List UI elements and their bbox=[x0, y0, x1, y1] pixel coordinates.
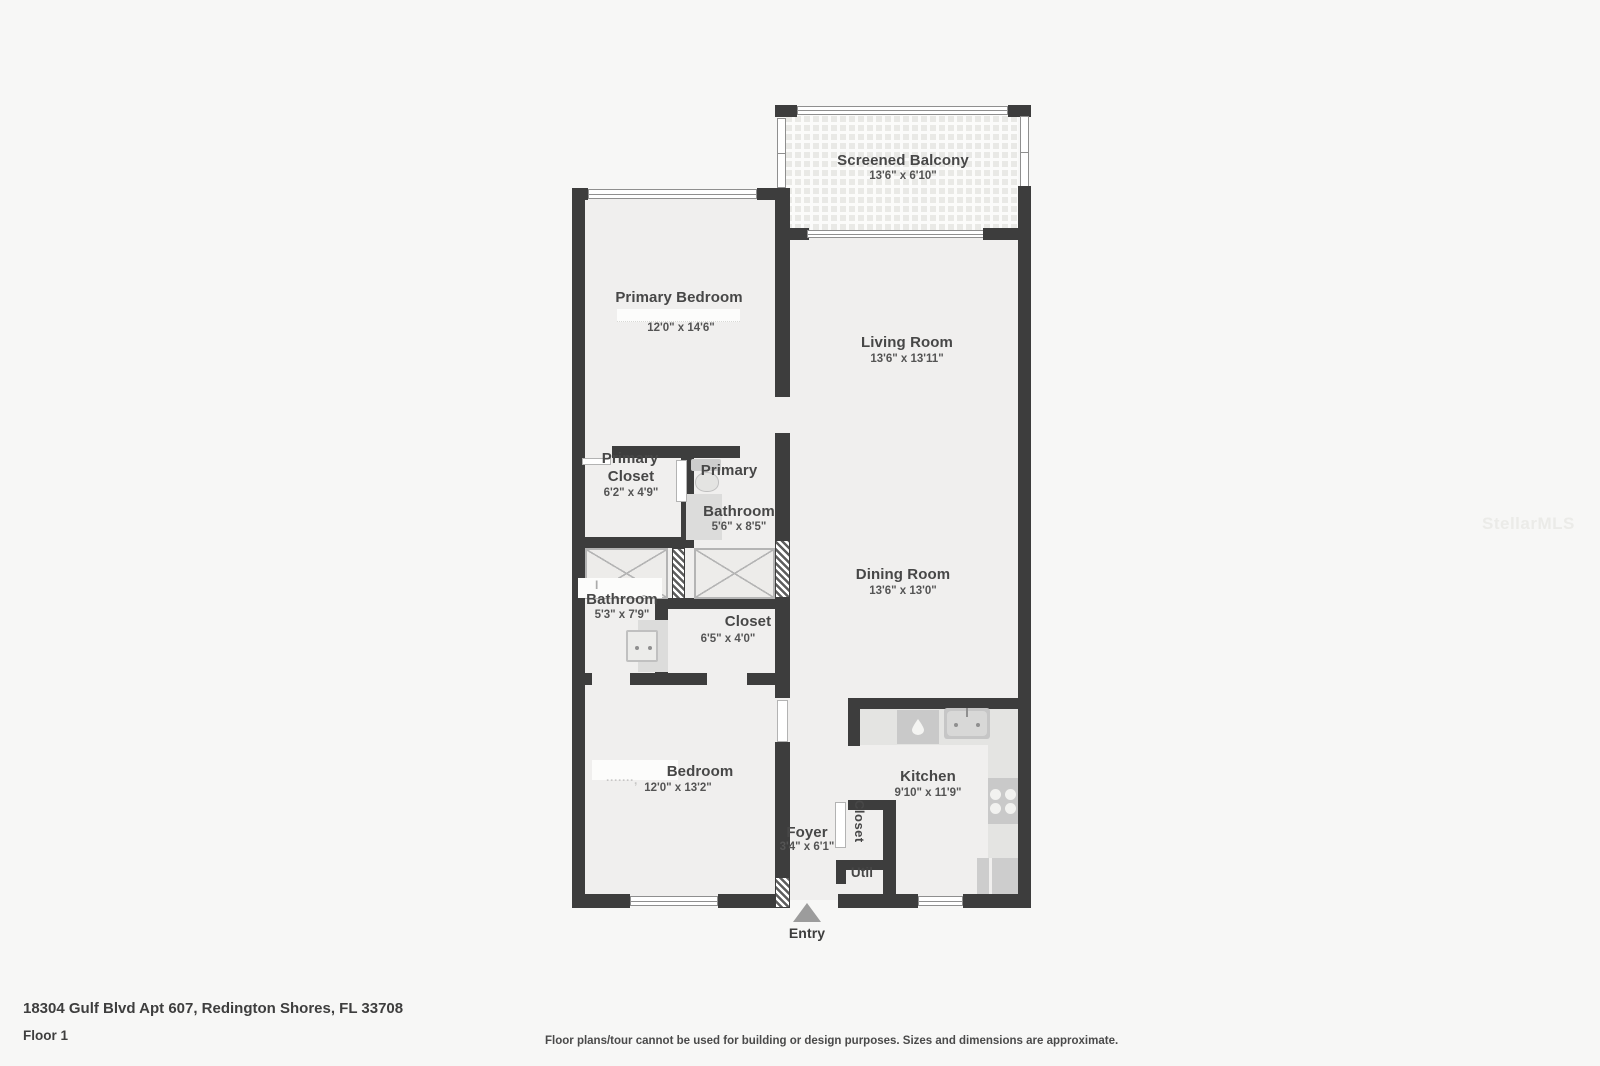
text-remnant: ·······, bbox=[606, 773, 637, 787]
wall bbox=[836, 860, 846, 884]
wall-central bbox=[775, 433, 790, 540]
footer-floor: Floor 1 bbox=[23, 1028, 68, 1043]
wall bbox=[838, 894, 918, 908]
entry-marker bbox=[793, 903, 821, 922]
room-label-primary-closet-line2: Closet bbox=[608, 468, 654, 485]
room-label-bedroom: Bedroom bbox=[667, 763, 734, 780]
room-dims-closet: 6'5" x 4'0" bbox=[701, 633, 756, 646]
door-leaf bbox=[777, 700, 788, 742]
room-dims-primary-bathroom: 5'6" x 8'5" bbox=[712, 521, 767, 534]
wall-kitchen-top bbox=[848, 698, 1031, 709]
watermark: StellarMLS bbox=[1482, 514, 1575, 534]
room-label-kitchen: Kitchen bbox=[900, 768, 956, 785]
room-label-dining-room: Dining Room bbox=[856, 566, 950, 583]
door-leaf bbox=[676, 460, 687, 502]
room-label-hall-closet: Closet bbox=[852, 800, 867, 856]
window bbox=[918, 896, 963, 906]
sink-drain-dot bbox=[635, 646, 639, 650]
sliding-door bbox=[807, 230, 985, 238]
room-dims-dining-room: 13'6" x 13'0" bbox=[869, 585, 937, 598]
wall bbox=[572, 537, 694, 548]
burner bbox=[990, 803, 1001, 814]
burner bbox=[1005, 789, 1016, 800]
burner bbox=[1005, 803, 1016, 814]
room-label-closet: Closet bbox=[725, 613, 771, 630]
room-label-bathroom: Bathroom bbox=[586, 591, 658, 608]
screen-panel bbox=[777, 118, 786, 188]
wall bbox=[572, 894, 630, 908]
footer-disclaimer: Floor plans/tour cannot be used for buil… bbox=[545, 1035, 1118, 1047]
wall-central bbox=[775, 742, 790, 877]
window bbox=[630, 896, 718, 906]
wall-central bbox=[775, 598, 790, 698]
erased-text-patch bbox=[617, 309, 740, 322]
room-dims-bathroom: 5'3" x 7'9" bbox=[595, 609, 650, 622]
wall bbox=[883, 800, 896, 894]
door-leaf bbox=[835, 802, 846, 848]
wall bbox=[775, 105, 797, 117]
wall bbox=[630, 673, 707, 685]
wall bbox=[655, 598, 790, 609]
wall-hatched bbox=[672, 548, 685, 599]
room-dims-kitchen: 9'10" x 11'9" bbox=[895, 787, 962, 800]
screen-panel bbox=[1020, 116, 1029, 188]
kitchen-counter-top bbox=[860, 709, 1018, 745]
room-label-living-room: Living Room bbox=[861, 334, 953, 351]
room-dims-bedroom: 12'0" x 13'2" bbox=[644, 782, 712, 795]
room-dims-screened-balcony: 13'6" x 6'10" bbox=[869, 170, 937, 183]
room-label-util: Util bbox=[851, 865, 873, 881]
droplet-icon bbox=[912, 719, 924, 735]
room-label-primary-bathroom-line2: Bathroom bbox=[703, 503, 775, 520]
burner bbox=[990, 789, 1001, 800]
sink-drain-dot bbox=[954, 723, 958, 727]
window bbox=[588, 189, 757, 199]
room-label-primary-bedroom: Primary Bedroom bbox=[615, 289, 742, 306]
wall bbox=[718, 894, 775, 908]
sink-drain-dot bbox=[976, 723, 980, 727]
wall-hatched bbox=[775, 540, 790, 598]
fridge-door-split bbox=[989, 858, 992, 894]
kitchen-sink bbox=[944, 708, 990, 739]
room-dims-primary-closet: 6'2" x 4'9" bbox=[604, 487, 659, 500]
wall-kitchen-left bbox=[848, 698, 860, 746]
room-dims-primary-bedroom: 12'0" x 14'6" bbox=[647, 322, 715, 335]
room-label-screened-balcony: Screened Balcony bbox=[837, 152, 969, 169]
room-label-foyer: Foyer bbox=[786, 824, 827, 841]
wall bbox=[572, 446, 580, 458]
room-label-primary-bathroom-line1: Primary bbox=[701, 462, 758, 479]
bathroom-sink bbox=[626, 630, 658, 662]
wall bbox=[572, 673, 592, 685]
floor-plan-page: I - ·······, Screened Balcony 13'6" x 6'… bbox=[0, 0, 1600, 1066]
stove bbox=[988, 778, 1018, 824]
sink-drain-dot bbox=[648, 646, 652, 650]
text-remnant: I bbox=[595, 578, 598, 592]
room-dims-living-room: 13'6" x 13'11" bbox=[870, 353, 943, 366]
room-label-primary-closet-line1: Primary bbox=[602, 450, 659, 467]
footer-address: 18304 Gulf Blvd Apt 607, Redington Shore… bbox=[23, 1000, 403, 1017]
entry-label: Entry bbox=[789, 925, 825, 941]
screen-panel bbox=[797, 106, 1008, 115]
dishwasher bbox=[897, 710, 939, 744]
wall bbox=[747, 673, 775, 685]
shower bbox=[694, 548, 775, 599]
room-dims-foyer: 3'4" x 6'1" bbox=[780, 841, 835, 854]
wall bbox=[963, 894, 1031, 908]
wall-exterior-left bbox=[572, 188, 585, 908]
wall-central bbox=[775, 188, 790, 397]
wall bbox=[572, 188, 588, 200]
refrigerator bbox=[977, 858, 1018, 894]
wall-hatched bbox=[775, 877, 790, 908]
wall-exterior-right bbox=[1018, 186, 1031, 908]
sink-faucet bbox=[966, 708, 968, 717]
